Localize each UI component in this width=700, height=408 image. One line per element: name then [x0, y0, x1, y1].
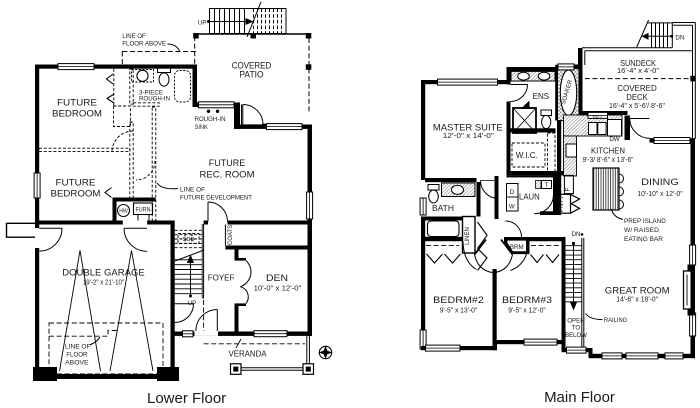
svg-text:LINE OF: LINE OF [180, 186, 205, 193]
svg-text:OPEN: OPEN [567, 318, 585, 325]
svg-text:BELOW: BELOW [565, 332, 587, 339]
svg-text:FUTURE DEVELOPMENT: FUTURE DEVELOPMENT [180, 194, 252, 201]
svg-text:MASTER SUITE: MASTER SUITE [433, 123, 503, 134]
svg-text:LINE OF: LINE OF [122, 33, 146, 40]
svg-text:BRM: BRM [510, 244, 524, 251]
svg-text:SDB: SDB [183, 237, 196, 243]
svg-text:ROUGH-IN: ROUGH-IN [195, 116, 226, 123]
svg-text:14'-6" x 18'-0": 14'-6" x 18'-0" [616, 296, 658, 303]
svg-text:BEDROOM: BEDROOM [52, 108, 102, 119]
svg-text:FUTURE: FUTURE [209, 158, 246, 169]
svg-text:9'-5" x 13'-0": 9'-5" x 13'-0" [440, 307, 478, 314]
svg-text:PREP ISLAND: PREP ISLAND [624, 218, 666, 225]
svg-text:T: T [545, 182, 549, 189]
svg-text:HW: HW [119, 208, 128, 214]
svg-text:FUTURE: FUTURE [56, 178, 96, 189]
svg-text:12'-0" x 14'-0": 12'-0" x 14'-0" [443, 133, 495, 140]
svg-text:SUNDECK: SUNDECK [620, 59, 656, 68]
svg-text:ENS: ENS [533, 92, 550, 101]
svg-text:GREAT ROOM: GREAT ROOM [605, 286, 670, 297]
svg-text:FURN: FURN [136, 207, 151, 214]
svg-text:F: F [565, 187, 572, 191]
svg-text:VERANDA: VERANDA [229, 350, 268, 359]
svg-text:UP: UP [198, 19, 207, 26]
svg-text:Main Floor: Main Floor [544, 389, 615, 406]
svg-text:LINEN: LINEN [465, 227, 471, 245]
svg-text:REC. ROOM: REC. ROOM [200, 169, 255, 180]
svg-text:COATS: COATS [228, 225, 234, 245]
svg-text:LINE OF: LINE OF [65, 343, 91, 350]
svg-text:DW: DW [609, 136, 619, 143]
svg-text:BATH: BATH [432, 204, 454, 213]
svg-text:9'-5" x 12'-0": 9'-5" x 12'-0" [508, 307, 546, 314]
svg-text:ABOVE: ABOVE [65, 359, 89, 366]
svg-text:PNTY: PNTY [558, 195, 565, 212]
svg-text:PATIO: PATIO [239, 69, 263, 80]
svg-text:DN: DN [675, 34, 684, 41]
svg-text:KITCHEN: KITCHEN [591, 147, 625, 156]
svg-text:10'-0" x 12'-0": 10'-0" x 12'-0" [254, 286, 302, 293]
svg-text:FLOOR: FLOOR [66, 351, 88, 358]
svg-text:W.I.C.: W.I.C. [516, 151, 538, 160]
svg-text:DEN: DEN [266, 273, 288, 284]
svg-text:SILL: SILL [592, 115, 603, 121]
svg-text:BEDROOM: BEDROOM [51, 189, 101, 200]
svg-text:9'-3/ 8'-6" x 13'-6": 9'-3/ 8'-6" x 13'-6" [583, 157, 634, 164]
svg-text:Lower Floor: Lower Floor [147, 390, 226, 407]
svg-text:DECK: DECK [626, 93, 648, 102]
svg-text:19'-2" x 21'-10": 19'-2" x 21'-10" [83, 280, 125, 287]
svg-text:FOYER: FOYER [208, 274, 236, 283]
svg-text:COVERED: COVERED [617, 84, 657, 93]
svg-text:TO: TO [572, 325, 581, 332]
svg-text:DINING: DINING [641, 177, 678, 188]
svg-text:W: W [509, 204, 515, 211]
svg-text:W/ RAISED: W/ RAISED [624, 227, 660, 234]
svg-text:FUTURE: FUTURE [57, 97, 97, 108]
svg-text:DOUBLE GARAGE: DOUBLE GARAGE [62, 267, 144, 278]
svg-text:LAUN: LAUN [519, 192, 540, 201]
svg-text:16'-4" x 5'-6'/ 8'-6": 16'-4" x 5'-6'/ 8'-6" [609, 103, 666, 110]
svg-text:BEDRM#3: BEDRM#3 [502, 295, 552, 306]
svg-text:DN: DN [572, 231, 581, 238]
svg-text:BEDRM#2: BEDRM#2 [433, 295, 484, 306]
svg-text:10'-10" x 12'-0": 10'-10" x 12'-0" [637, 191, 683, 198]
svg-text:D: D [510, 189, 515, 196]
svg-text:FLOOR ABOVE: FLOOR ABOVE [122, 40, 166, 47]
svg-text:SINK: SINK [195, 124, 209, 131]
svg-text:16'-4" x 4'-0": 16'-4" x 4'-0" [617, 68, 660, 75]
svg-text:RAILING: RAILING [604, 317, 627, 324]
svg-text:ROUGH-IN: ROUGH-IN [139, 95, 170, 102]
svg-text:EATING BAR: EATING BAR [624, 236, 664, 243]
